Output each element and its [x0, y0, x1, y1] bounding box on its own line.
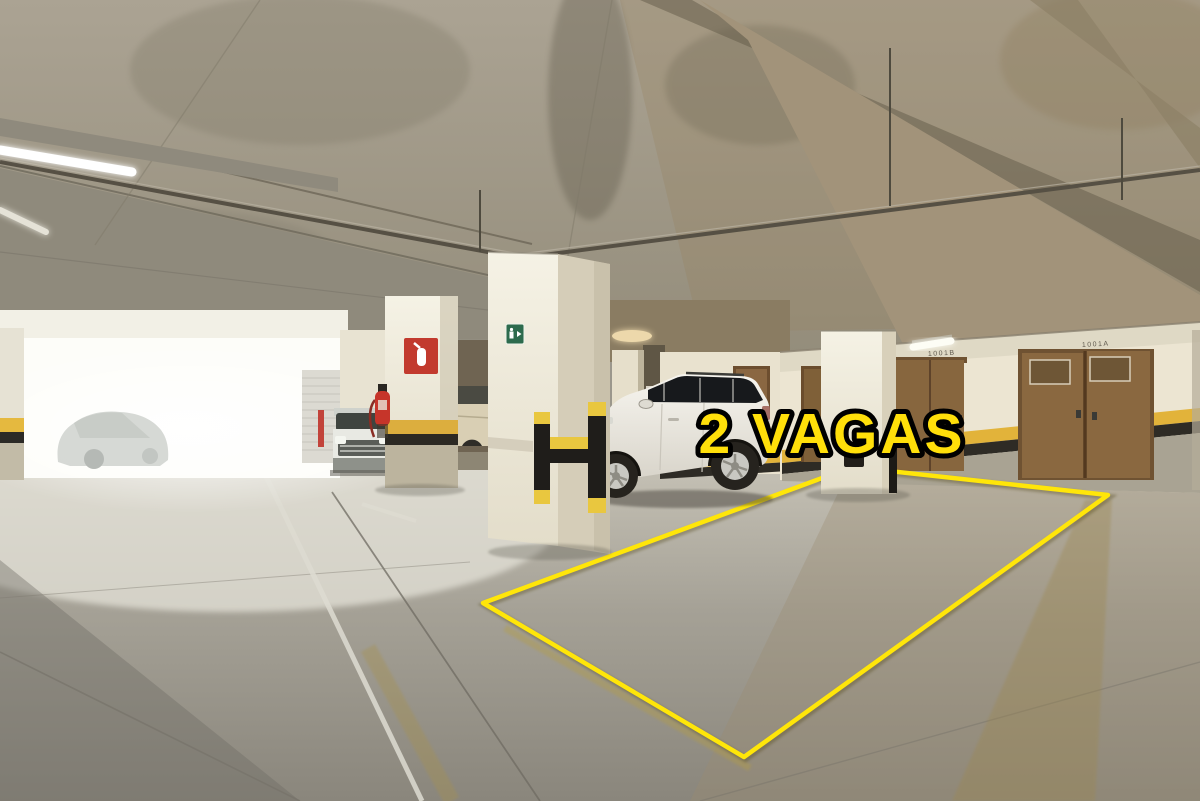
beige-car	[456, 386, 491, 446]
emergency-exit-sign	[506, 324, 524, 344]
fire-extinguisher-sign	[404, 338, 438, 374]
side-mirror	[639, 400, 653, 409]
red-standpipe	[318, 410, 324, 447]
door-window	[1030, 360, 1070, 384]
exit-man-glyph	[510, 332, 514, 339]
parking-garage-photo: 1001B 1001A	[0, 0, 1200, 801]
wood-door-double	[1018, 349, 1154, 480]
stencil-label-right: 1001A	[1082, 341, 1110, 349]
extinguisher-glyph	[417, 348, 426, 366]
corridor-gap	[456, 340, 492, 470]
door-window	[1090, 357, 1130, 381]
scene-canvas: 1001B 1001A	[0, 0, 1200, 801]
overlay-caption: 2 VAGAS	[698, 402, 965, 466]
pillar-stripe-black	[385, 434, 458, 445]
far-left-pillar	[0, 328, 24, 480]
door-handle	[668, 418, 679, 421]
pillar-stripe-yellow	[385, 420, 458, 434]
stencil-label-left: 1001B	[928, 350, 956, 358]
background-light	[612, 330, 652, 342]
pillar-central	[488, 252, 612, 560]
